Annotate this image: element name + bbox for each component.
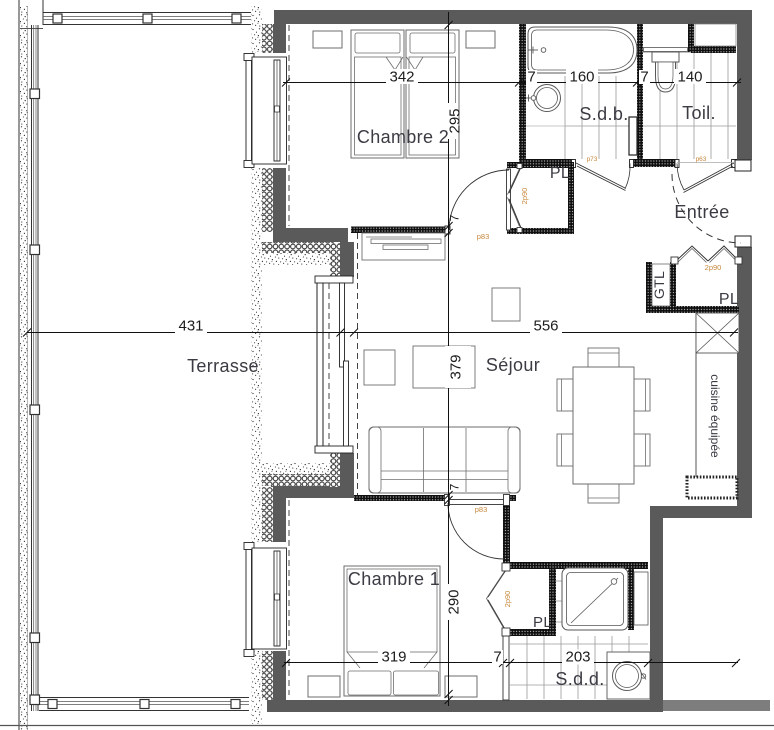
svg-text:431: 431: [178, 318, 203, 335]
svg-text:Chambre 2: Chambre 2: [357, 127, 449, 147]
svg-text:S.d.d.: S.d.d.: [555, 669, 604, 689]
svg-text:Terrasse: Terrasse: [187, 356, 259, 376]
svg-text:PL: PL: [550, 165, 570, 182]
svg-text:342: 342: [389, 69, 414, 86]
svg-text:203: 203: [565, 649, 590, 666]
svg-text:379: 379: [448, 354, 465, 379]
svg-text:Toil.: Toil.: [682, 103, 716, 123]
svg-text:p73: p73: [587, 156, 598, 163]
svg-text:cuisine équipée: cuisine équipée: [708, 374, 722, 458]
svg-text:7: 7: [527, 69, 535, 86]
svg-text:7: 7: [448, 214, 462, 221]
svg-text:7: 7: [493, 649, 501, 666]
svg-text:p83: p83: [477, 232, 490, 241]
svg-text:290: 290: [446, 589, 463, 614]
svg-text:PL: PL: [533, 614, 552, 631]
svg-text:S.d.b.: S.d.b.: [579, 104, 628, 124]
svg-text:7: 7: [448, 483, 462, 490]
svg-text:p63: p63: [696, 156, 707, 163]
svg-text:140: 140: [677, 69, 702, 86]
svg-text:Entrée: Entrée: [674, 202, 729, 222]
svg-text:319: 319: [381, 649, 406, 666]
svg-text:Séjour: Séjour: [486, 355, 540, 375]
svg-text:160: 160: [569, 69, 594, 86]
svg-text:Chambre 1: Chambre 1: [348, 569, 440, 589]
svg-text:2p90: 2p90: [503, 591, 512, 608]
svg-text:556: 556: [533, 318, 558, 335]
svg-text:PL: PL: [719, 291, 739, 308]
svg-text:p83: p83: [475, 505, 488, 514]
svg-text:7: 7: [640, 69, 648, 86]
svg-text:2p90: 2p90: [520, 188, 529, 205]
svg-text:2p90: 2p90: [705, 263, 722, 272]
svg-text:GTL: GTL: [651, 271, 667, 299]
